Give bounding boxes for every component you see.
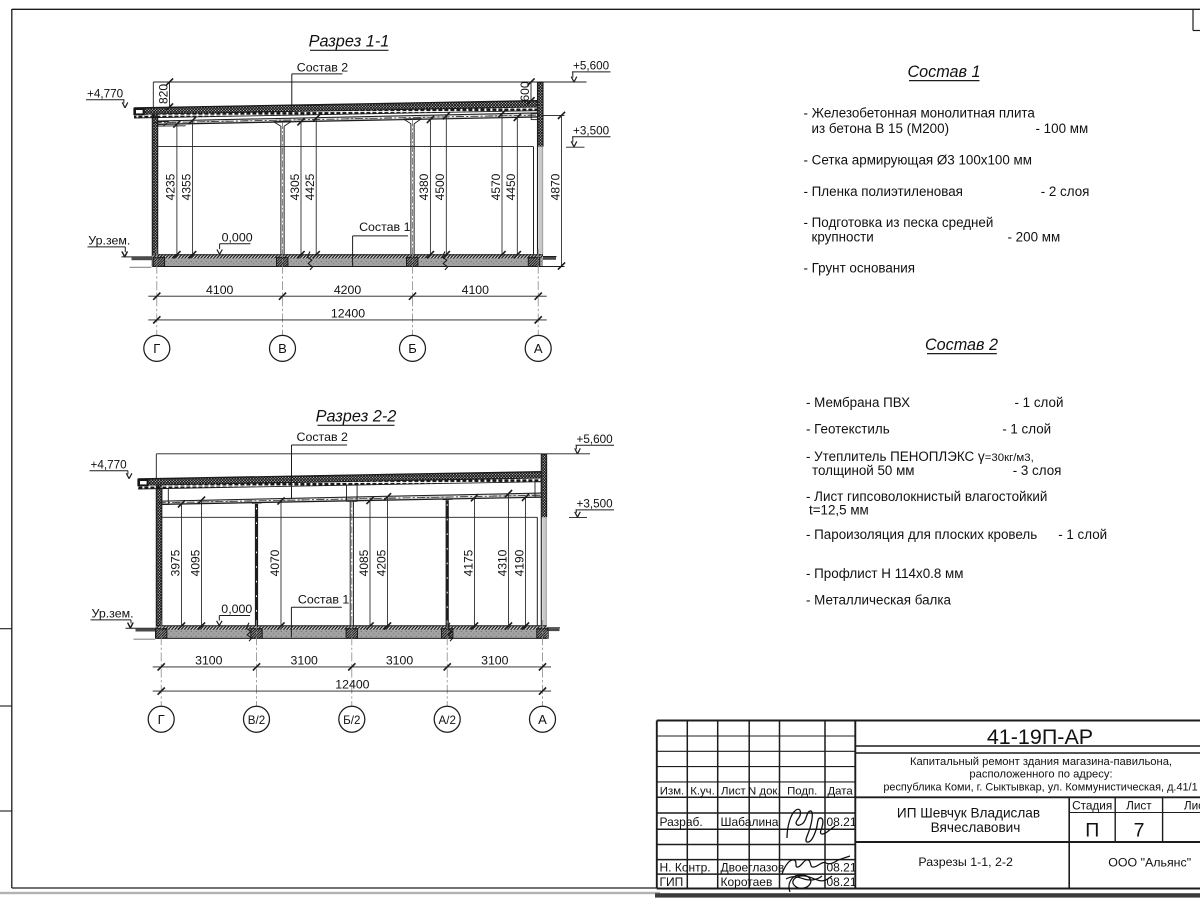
svg-text:4500: 4500 [433,173,447,200]
svg-text:Разрез 2-2: Разрез 2-2 [316,408,397,426]
svg-text:+5,600: +5,600 [577,433,614,446]
svg-text:- Пароизоляция для плоских кро: - Пароизоляция для плоских кровель [806,527,1037,542]
svg-text:+5,600: +5,600 [573,60,610,73]
svg-text:- Сетка армирующая Ø3 100х100: - Сетка армирующая Ø3 100х100 мм [804,153,1032,168]
svg-text:4095: 4095 [188,549,202,576]
svg-text:- 100 мм: - 100 мм [1036,121,1089,136]
svg-text:4870: 4870 [548,173,562,200]
svg-text:+4,770: +4,770 [87,87,124,100]
svg-text:Состав 1: Состав 1 [298,592,349,606]
svg-text:08.21: 08.21 [827,815,857,829]
svg-text:41-19П-АР: 41-19П-АР [987,725,1093,749]
svg-text:- Подготовка из песка средней: - Подготовка из песка средней [804,215,994,230]
svg-text:4570: 4570 [489,173,503,200]
svg-text:А: А [538,712,547,727]
svg-text:Состав 1: Состав 1 [359,220,410,234]
svg-text:Вячеславович: Вячеславович [931,820,1021,835]
svg-text:Подп.: Подп. [787,785,817,797]
svg-text:+4,770: +4,770 [91,458,128,471]
svg-text:3100: 3100 [386,654,414,668]
svg-text:В/2: В/2 [248,714,265,727]
svg-text:4235: 4235 [164,173,178,200]
svg-text:А: А [534,341,543,356]
svg-text:4200: 4200 [334,283,362,297]
svg-text:0,000: 0,000 [221,602,252,616]
svg-text:3100: 3100 [291,654,319,668]
svg-text:Изм.: Изм. [660,785,684,797]
svg-text:- 1 слой: - 1 слой [1015,395,1064,410]
svg-text:820: 820 [156,84,170,104]
svg-text:3100: 3100 [195,654,223,668]
svg-text:4450: 4450 [504,173,518,200]
svg-text:Капитальный ремонт здания мага: Капитальный ремонт здания магазина-павил… [910,756,1172,768]
svg-text:Состав 2: Состав 2 [297,430,348,444]
svg-text:ИП Шевчук Владислав: ИП Шевчук Владислав [897,806,1040,821]
svg-text:- Геотекстиль: - Геотекстиль [806,422,890,437]
svg-text:Дата: Дата [827,785,853,797]
svg-text:- Утеплитель ПЕНОПЛЭКС γ=30кг/: - Утеплитель ПЕНОПЛЭКС γ=30кг/м3, [806,449,1034,464]
svg-text:4100: 4100 [206,283,234,297]
svg-text:3975: 3975 [168,549,182,576]
svg-text:12400: 12400 [331,307,365,321]
svg-text:7: 7 [1134,820,1145,842]
svg-text:600: 600 [518,81,532,101]
svg-text:толщиной 50 мм: толщиной 50 мм [812,463,915,478]
svg-text:Ур.зем.: Ур.зем. [92,606,134,620]
svg-text:- Профлист Н 114х0.8 мм: - Профлист Н 114х0.8 мм [806,566,963,581]
svg-text:4425: 4425 [303,173,317,200]
svg-text:4310: 4310 [495,549,509,576]
svg-text:4175: 4175 [461,549,475,576]
svg-text:Ур.зем.: Ур.зем. [88,234,130,248]
svg-text:Г: Г [153,341,160,356]
svg-text:Разрез 1-1: Разрез 1-1 [309,33,390,51]
svg-text:Листов: Листов [1184,798,1200,812]
svg-text:республика Коми, г. Сыктывкар,: республика Коми, г. Сыктывкар, ул. Комму… [883,781,1197,793]
svg-text:Лист: Лист [1126,798,1152,812]
svg-text:А/2: А/2 [438,714,455,727]
svg-text:- 1 слой: - 1 слой [1002,422,1051,437]
svg-text:12400: 12400 [335,678,369,692]
svg-text:08.21: 08.21 [827,860,857,874]
svg-text:4305: 4305 [288,173,302,200]
svg-text:4355: 4355 [179,173,193,200]
svg-text:Стадия: Стадия [1072,798,1112,812]
svg-text:Б: Б [408,341,417,356]
svg-text:- 200 мм: - 200 мм [1008,230,1061,245]
svg-text:4070: 4070 [268,549,282,576]
svg-text:П: П [1085,820,1099,842]
svg-text:ООО "Альянс": ООО "Альянс" [1108,856,1191,870]
svg-text:Лист: Лист [721,785,747,797]
svg-text:- Мембрана ПВХ: - Мембрана ПВХ [806,395,910,410]
svg-text:Состав 2: Состав 2 [925,336,998,354]
svg-text:+3,500: +3,500 [573,124,610,137]
svg-text:- 2 слоя: - 2 слоя [1041,184,1090,199]
svg-text:Б/2: Б/2 [343,714,360,727]
svg-text:Коротаев: Коротаев [721,875,773,889]
svg-text:- 3 слоя: - 3 слоя [1013,463,1062,478]
svg-text:Разрезы 1-1, 2-2: Разрезы 1-1, 2-2 [918,855,1013,869]
svg-text:К.уч.: К.уч. [690,785,715,797]
svg-text:Двоеглазов: Двоеглазов [721,860,785,874]
svg-text:- Грунт основания: - Грунт основания [804,260,915,275]
svg-text:Состав 2: Состав 2 [297,61,348,75]
svg-text:3100: 3100 [481,654,509,668]
svg-text:4085: 4085 [357,549,371,576]
svg-text:4100: 4100 [462,283,490,297]
svg-text:Шабалина: Шабалина [721,815,779,829]
svg-text:из бетона В 15 (М200): из бетона В 15 (М200) [812,121,950,136]
svg-text:t=12,5 мм: t=12,5 мм [809,502,869,517]
svg-text:Г: Г [158,712,165,727]
svg-text:- 1 слой: - 1 слой [1058,527,1107,542]
svg-text:Состав 1: Состав 1 [907,63,980,81]
svg-text:расположенного по адресу:: расположенного по адресу: [969,768,1112,780]
svg-text:4380: 4380 [417,173,431,200]
svg-text:+3,500: +3,500 [577,498,614,511]
svg-text:- Металлическая балка: - Металлическая балка [806,592,951,607]
svg-text:В: В [278,341,287,356]
svg-text:N док.: N док. [748,785,781,797]
svg-text:4190: 4190 [512,549,526,576]
svg-text:- Железобетонная монолитная п: - Железобетонная монолитная плита [804,105,1036,120]
svg-text:- Пленка полиэтиленовая: - Пленка полиэтиленовая [804,184,963,199]
svg-text:0,000: 0,000 [222,231,253,245]
svg-text:крупности: крупности [812,230,874,245]
svg-text:Разраб.: Разраб. [660,815,703,829]
svg-text:Н. Контр.: Н. Контр. [660,860,711,874]
svg-text:ГИП: ГИП [660,875,684,889]
svg-text:4205: 4205 [374,549,388,576]
